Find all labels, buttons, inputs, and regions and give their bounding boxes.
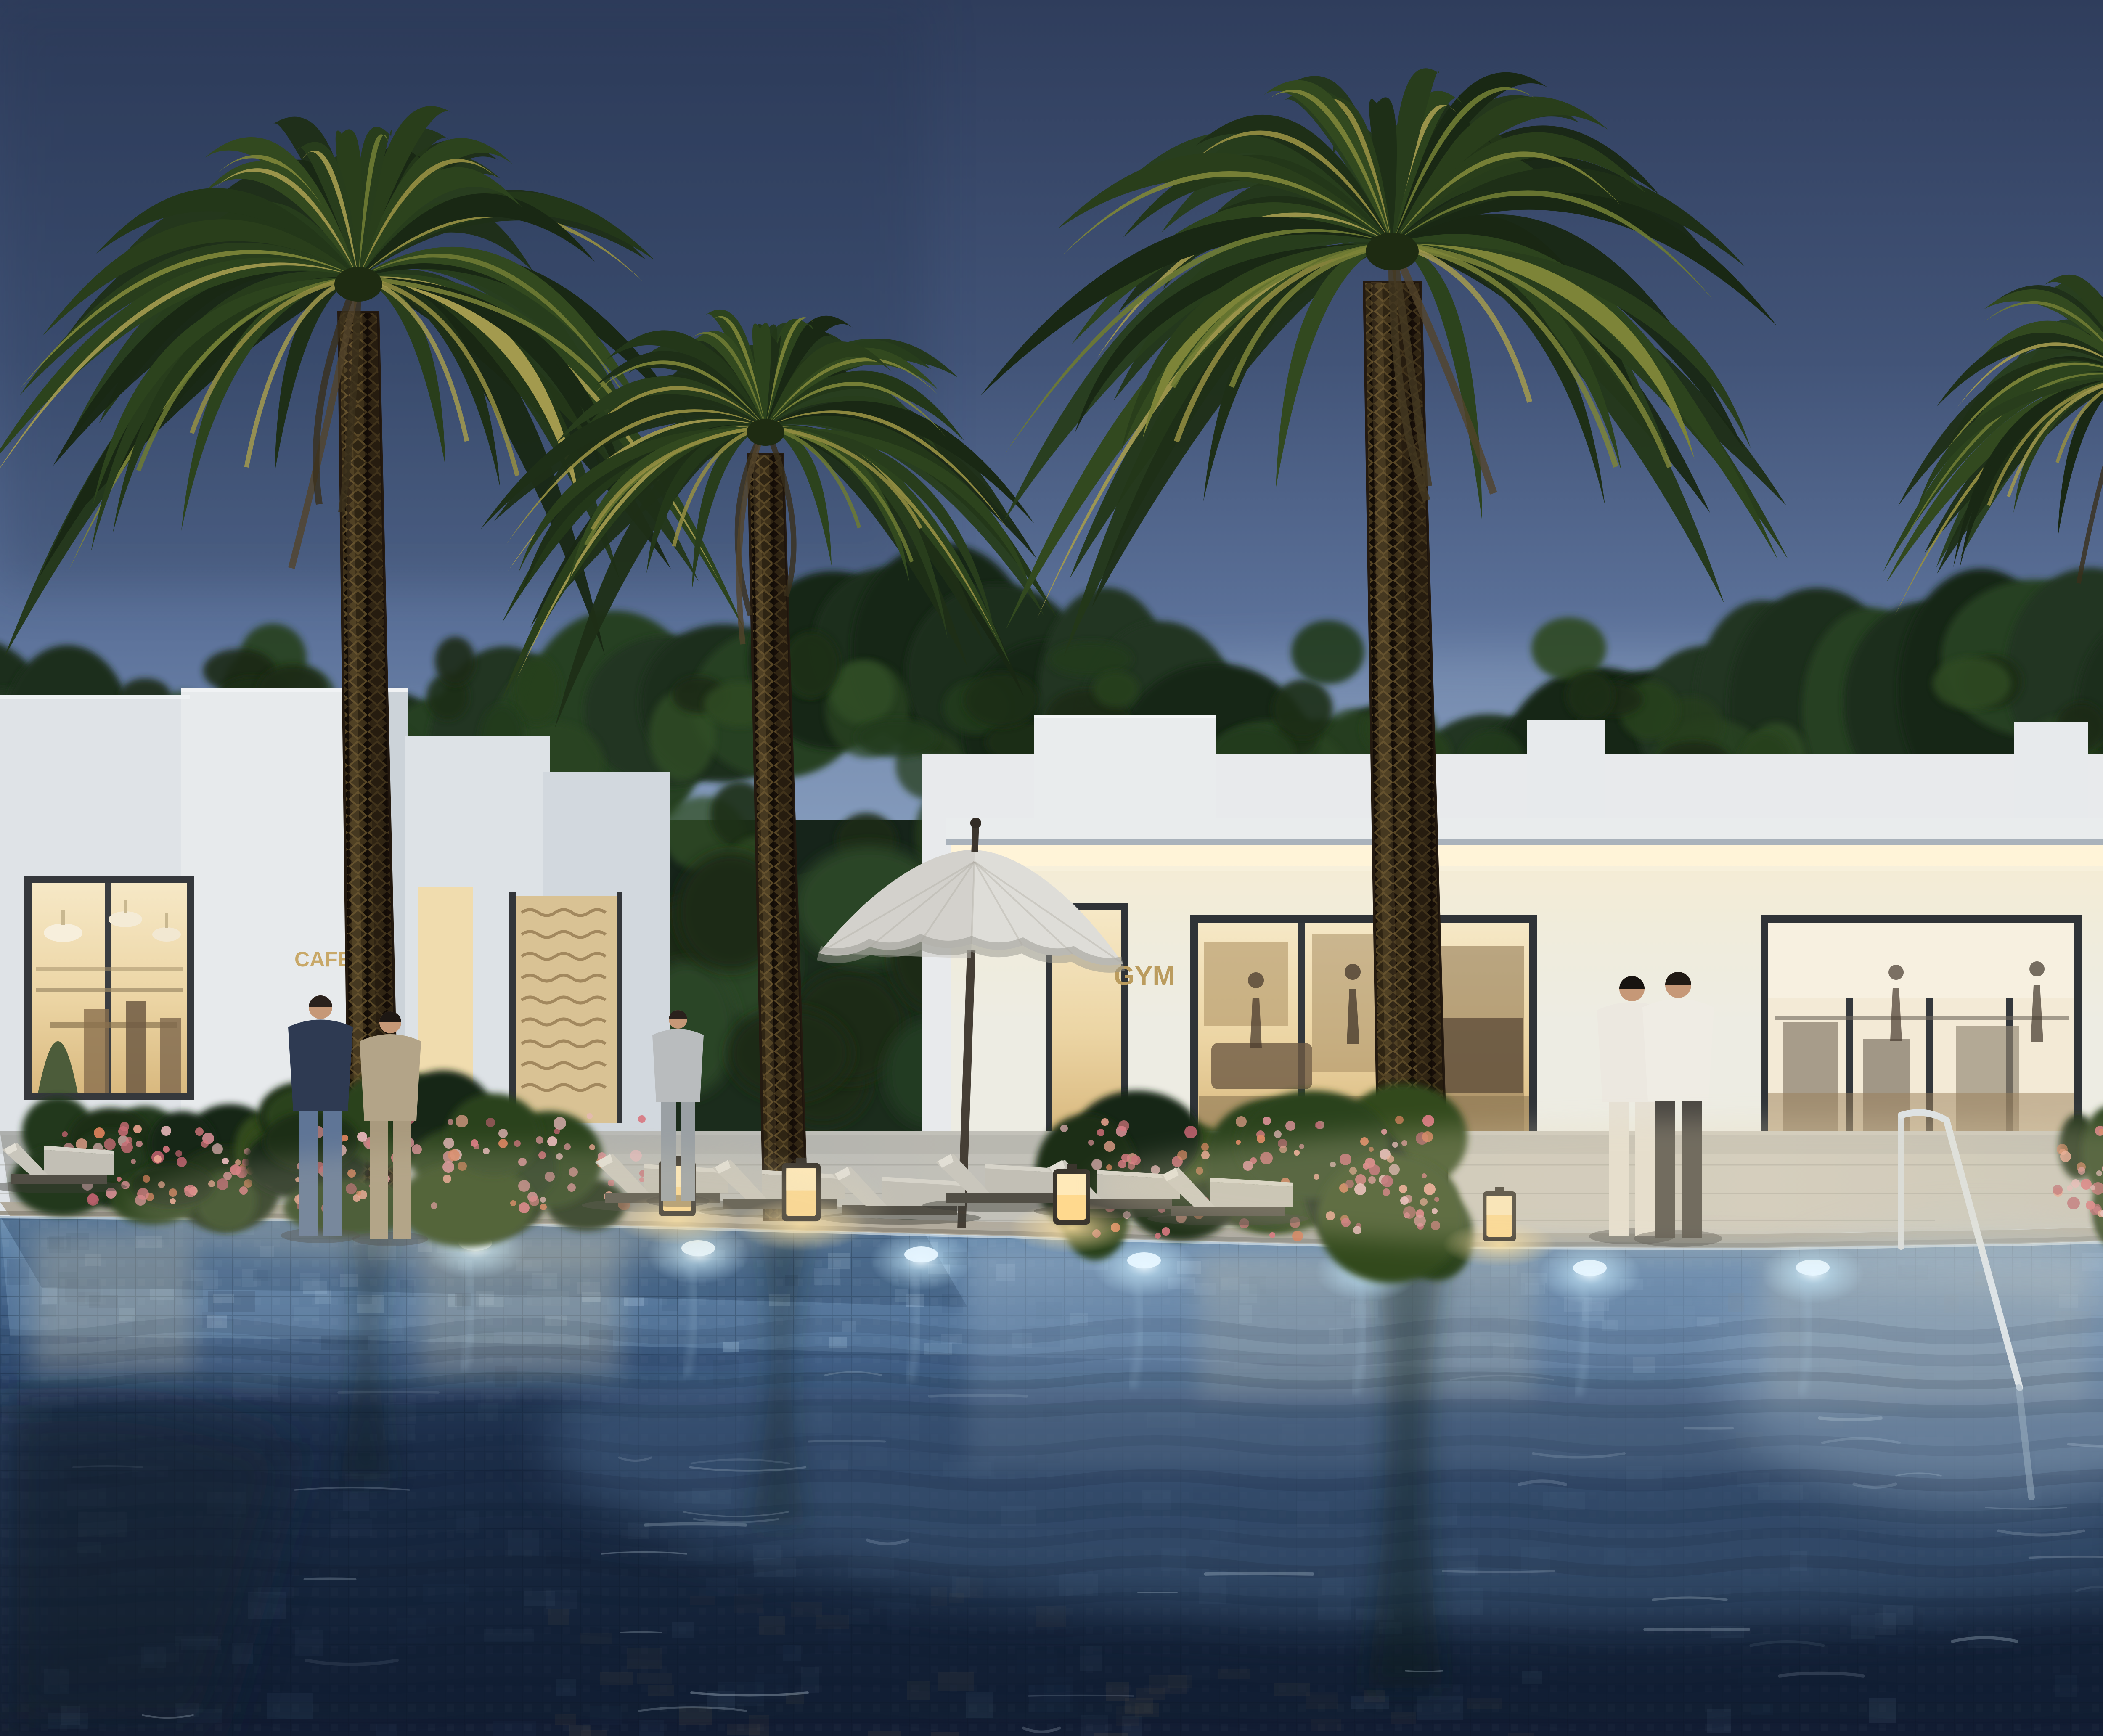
svg-text:CAFE: CAFE bbox=[294, 947, 352, 971]
